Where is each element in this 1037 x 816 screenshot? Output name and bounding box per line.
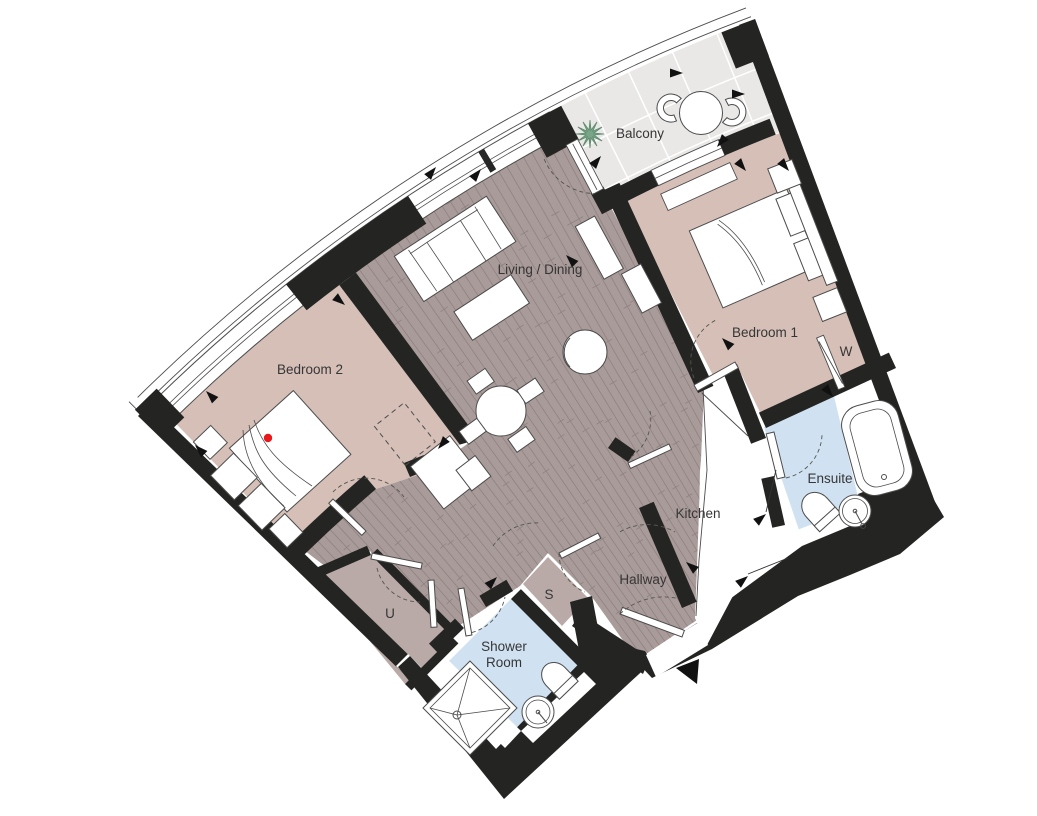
svg-text:Living / Dining: Living / Dining [498, 262, 583, 277]
svg-text:Bedroom 1: Bedroom 1 [732, 325, 798, 340]
svg-text:Balcony: Balcony [616, 126, 664, 141]
svg-text:Bedroom 2: Bedroom 2 [277, 362, 343, 377]
svg-text:Hallway: Hallway [619, 572, 667, 587]
svg-text:Kitchen: Kitchen [675, 506, 720, 521]
svg-text:ShowerRoom: ShowerRoom [481, 639, 527, 670]
svg-text:U: U [385, 606, 395, 621]
svg-text:W: W [840, 344, 853, 359]
svg-text:S: S [544, 587, 553, 602]
svg-text:Ensuite: Ensuite [807, 471, 852, 486]
